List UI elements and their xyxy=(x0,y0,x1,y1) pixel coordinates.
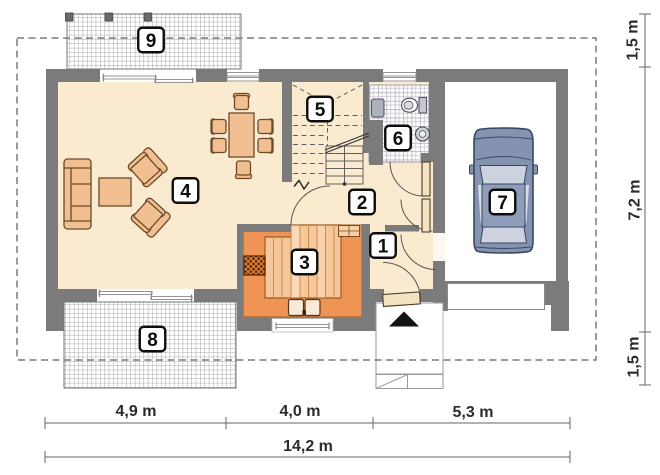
svg-text:9: 9 xyxy=(146,31,157,52)
svg-text:5,3 m: 5,3 m xyxy=(453,404,494,421)
svg-text:5: 5 xyxy=(315,100,326,121)
svg-text:2: 2 xyxy=(357,193,368,214)
svg-text:1,5 m: 1,5 m xyxy=(625,20,642,61)
svg-text:4,9 m: 4,9 m xyxy=(116,403,157,420)
svg-text:7,2 m: 7,2 m xyxy=(627,180,644,221)
svg-text:3: 3 xyxy=(299,253,310,274)
svg-text:8: 8 xyxy=(147,330,158,351)
svg-text:1,5 m: 1,5 m xyxy=(626,337,643,378)
svg-text:1: 1 xyxy=(378,236,389,257)
svg-text:6: 6 xyxy=(393,129,404,150)
svg-text:4: 4 xyxy=(180,181,191,202)
svg-text:4,0 m: 4,0 m xyxy=(280,403,321,420)
svg-text:7: 7 xyxy=(497,193,508,214)
svg-text:14,2 m: 14,2 m xyxy=(283,438,333,455)
